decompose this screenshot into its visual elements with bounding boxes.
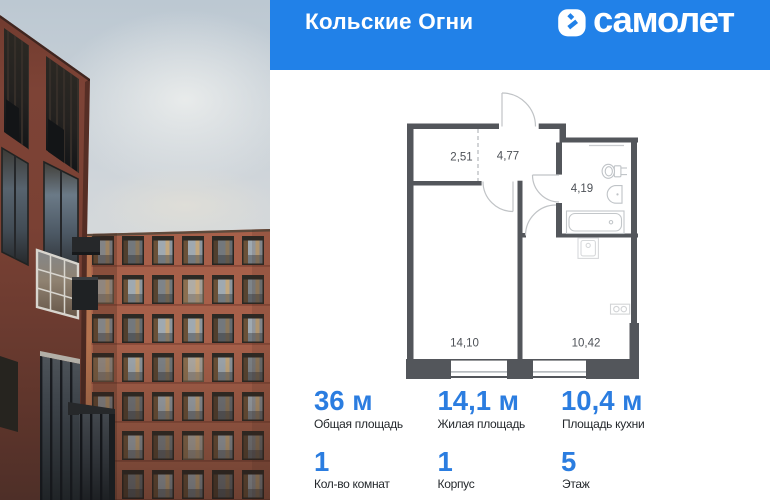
- svg-text:4,19: 4,19: [571, 183, 593, 195]
- svg-text:4,77: 4,77: [497, 151, 519, 163]
- svg-text:14,10: 14,10: [450, 338, 479, 350]
- svg-text:2,51: 2,51: [450, 152, 472, 164]
- svg-text:10,42: 10,42: [572, 338, 601, 350]
